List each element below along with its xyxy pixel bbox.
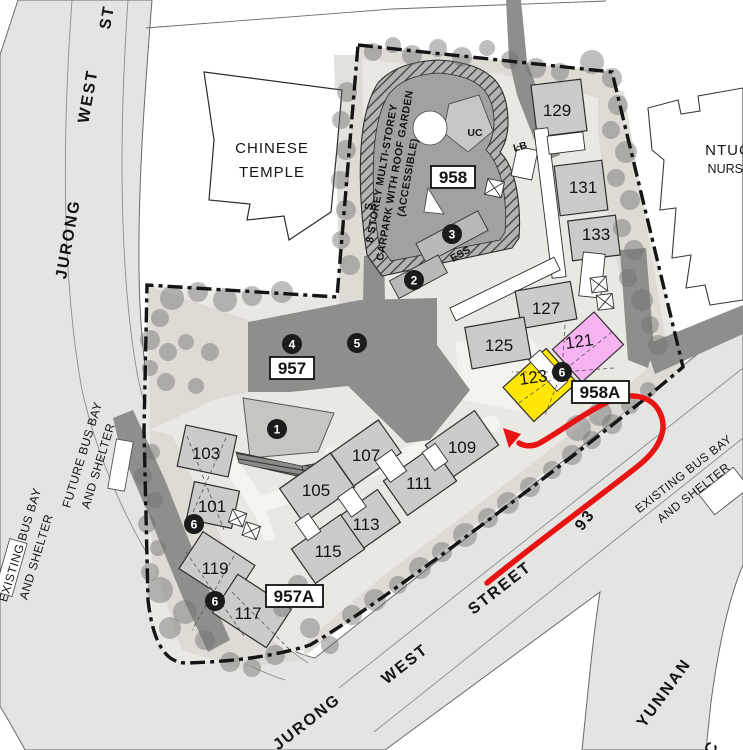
ntuc-label-2: NURSERY (708, 162, 743, 176)
block-label-133: 133 (582, 225, 610, 244)
block-label-129: 129 (543, 101, 571, 120)
site-plan-svg: JURONG WEST ST JURONG WEST STREET 93 YUN… (0, 0, 743, 750)
block-label-105: 105 (302, 481, 330, 500)
marker-2: 2 (404, 270, 424, 290)
block-label-111: 111 (406, 474, 432, 493)
marker-3: 3 (442, 224, 462, 244)
block-label-119: 119 (201, 559, 228, 578)
block-label-125: 125 (485, 336, 513, 355)
svg-text:5: 5 (354, 337, 361, 351)
marker-6-block117: 6 (205, 591, 225, 611)
ntuc-label-1: NTUC (705, 142, 743, 159)
svg-text:1: 1 (274, 423, 281, 437)
link-129 (547, 132, 585, 154)
block-label-115: 115 (314, 542, 341, 561)
marker-1: 1 (267, 419, 287, 439)
block-label-109: 109 (448, 438, 476, 457)
site-plan-map: JURONG WEST ST JURONG WEST STREET 93 YUN… (0, 0, 743, 750)
precinct-badge-958: 958 (431, 166, 475, 188)
svg-text:6: 6 (191, 518, 198, 532)
block-label-113: 113 (352, 515, 379, 534)
temple-label-2: TEMPLE (239, 164, 305, 181)
marker-6-block123: 6 (552, 362, 572, 382)
precinct-badge-957a: 957A (266, 585, 323, 607)
block-label-131: 131 (569, 178, 597, 197)
block-label-127: 127 (532, 299, 560, 318)
uc-label: UC (467, 127, 483, 139)
temple-label-1: CHINESE (235, 140, 309, 157)
block-label-107: 107 (352, 446, 380, 465)
crossed-box-lb (485, 179, 505, 198)
block-label-117: 117 (234, 604, 261, 623)
svg-text:4: 4 (289, 338, 296, 352)
svg-text:3: 3 (449, 228, 456, 242)
svg-text:6: 6 (212, 595, 219, 609)
marker-5: 5 (347, 333, 367, 353)
marker-4: 4 (282, 334, 302, 354)
svg-text:957A: 957A (274, 587, 315, 606)
svg-text:958: 958 (439, 168, 467, 187)
svg-text:958A: 958A (580, 383, 621, 402)
block-label-121: 121 (564, 330, 595, 353)
precinct-badge-957: 957 (270, 357, 314, 379)
precinct-badge-958a: 958A (572, 381, 629, 403)
marker-6-block101: 6 (184, 514, 204, 534)
svg-text:6: 6 (559, 366, 566, 380)
block-label-103: 103 (192, 444, 220, 463)
block-label-123: 123 (518, 366, 549, 389)
svg-text:2: 2 (411, 274, 418, 288)
svg-text:957: 957 (278, 359, 306, 378)
block-label-101: 101 (198, 497, 226, 516)
